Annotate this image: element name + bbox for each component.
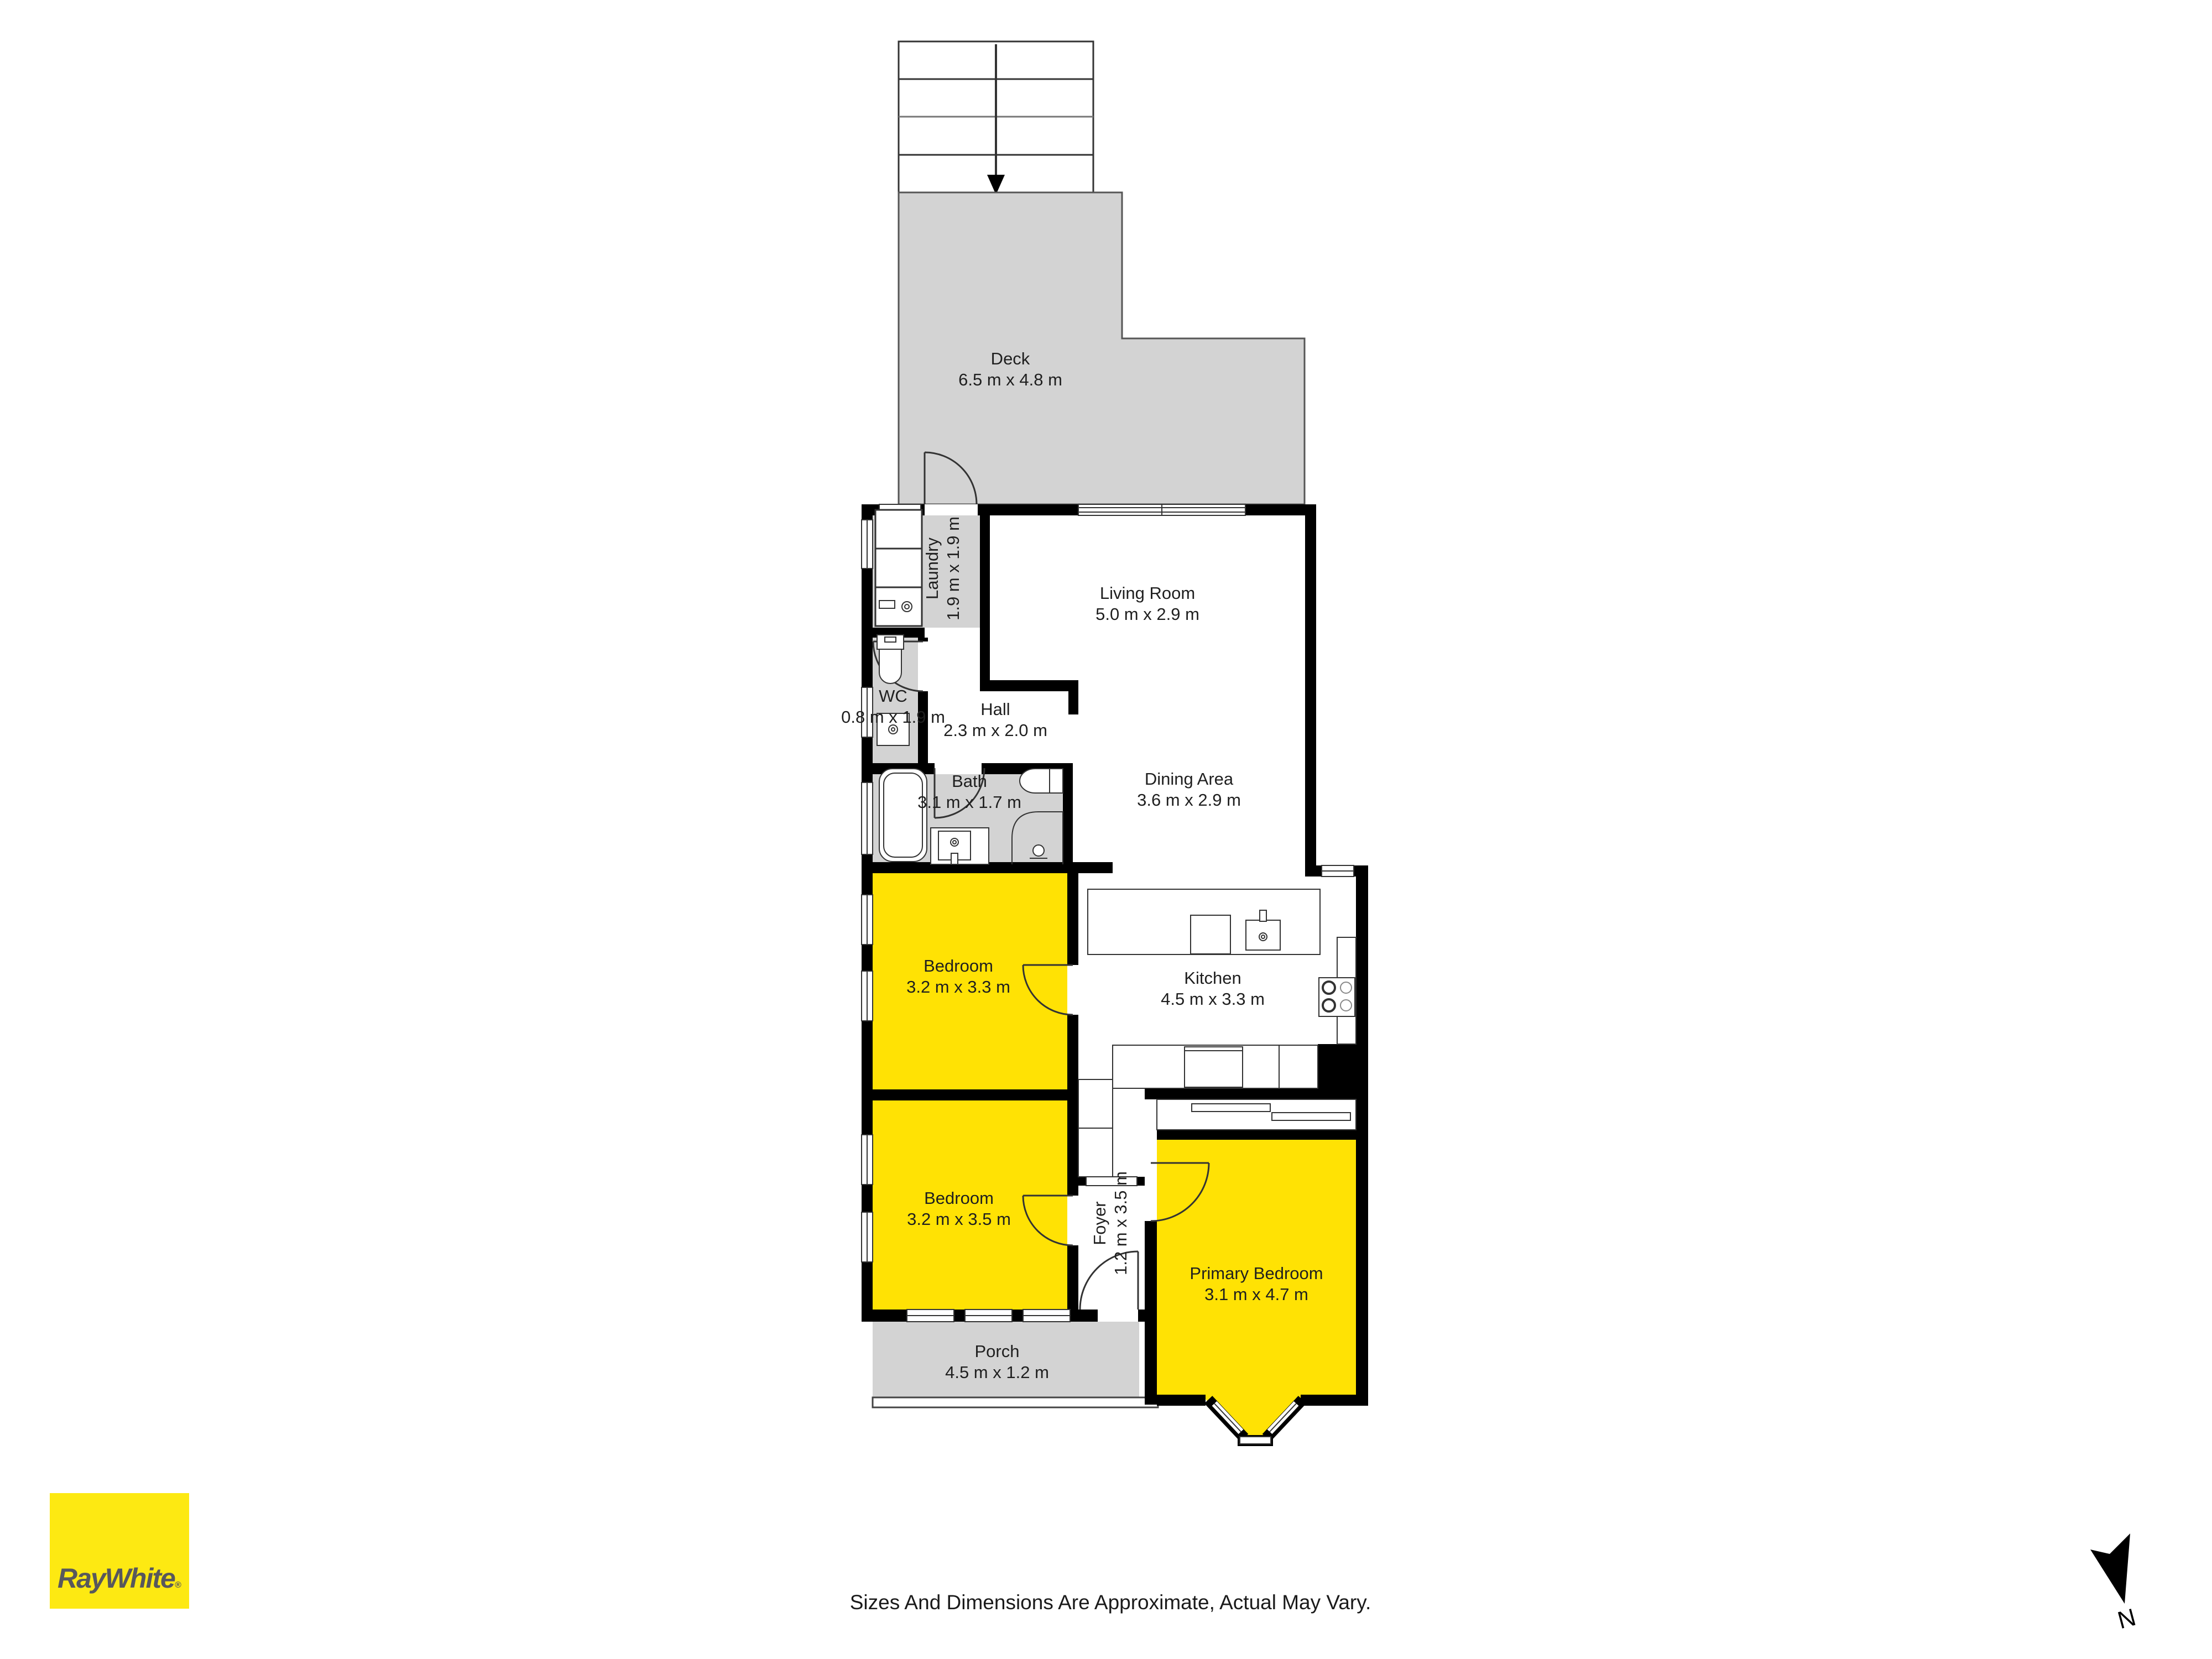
floorplan-drawing [0,0,2212,1659]
stairs [899,41,1093,195]
north-arrow-icon [2090,1533,2130,1604]
room-label-dining-area: Dining Area 3.6 m x 2.9 m [1137,769,1241,811]
laundry-appliances-icon [875,510,922,626]
kitchen-counter-icon [1088,889,1320,954]
kitchen-lower-counter-icon [1113,1045,1318,1088]
raywhite-logo-text: RayWhite® [58,1562,180,1594]
room-label-primary-bedroom: Primary Bedroom 3.1 m x 4.7 m [1190,1263,1323,1305]
floorplan-canvas: Deck 6.5 m x 4.8 m Laundry 1.9 m x 1.9 m… [0,0,2212,1659]
vanity-basin-icon [931,828,989,864]
room-label-kitchen: Kitchen 4.5 m x 3.3 m [1161,968,1265,1010]
room-label-hall: Hall 2.3 m x 2.0 m [943,699,1047,741]
room-label-bedroom-2: Bedroom 3.2 m x 3.5 m [907,1188,1011,1230]
room-label-laundry: Laundry 1.9 m x 1.9 m [922,517,964,620]
room-label-bath: Bath 3.1 m x 1.7 m [917,771,1021,813]
stove-icon [1319,937,1356,1044]
room-label-living-room: Living Room 5.0 m x 2.9 m [1095,583,1199,625]
bath-toilet-icon [1020,769,1063,793]
porch-step [873,1397,1158,1407]
room-label-deck: Deck 6.5 m x 4.8 m [958,348,1062,390]
disclaimer-text: Sizes And Dimensions Are Approximate, Ac… [850,1591,1371,1614]
sliding-door-icon [1192,1104,1270,1112]
room-label-foyer: Foyer 1.2 m x 3.5 m [1089,1171,1131,1275]
room-label-porch: Porch 4.5 m x 1.2 m [945,1341,1049,1383]
sliding-door-icon [1272,1113,1350,1120]
room-label-wc: WC 0.8 m x 1.9 m [841,686,945,728]
room-label-bedroom-1: Bedroom 3.2 m x 3.3 m [906,956,1010,998]
raywhite-logo: RayWhite® [50,1493,189,1609]
toilet-icon [877,635,904,684]
